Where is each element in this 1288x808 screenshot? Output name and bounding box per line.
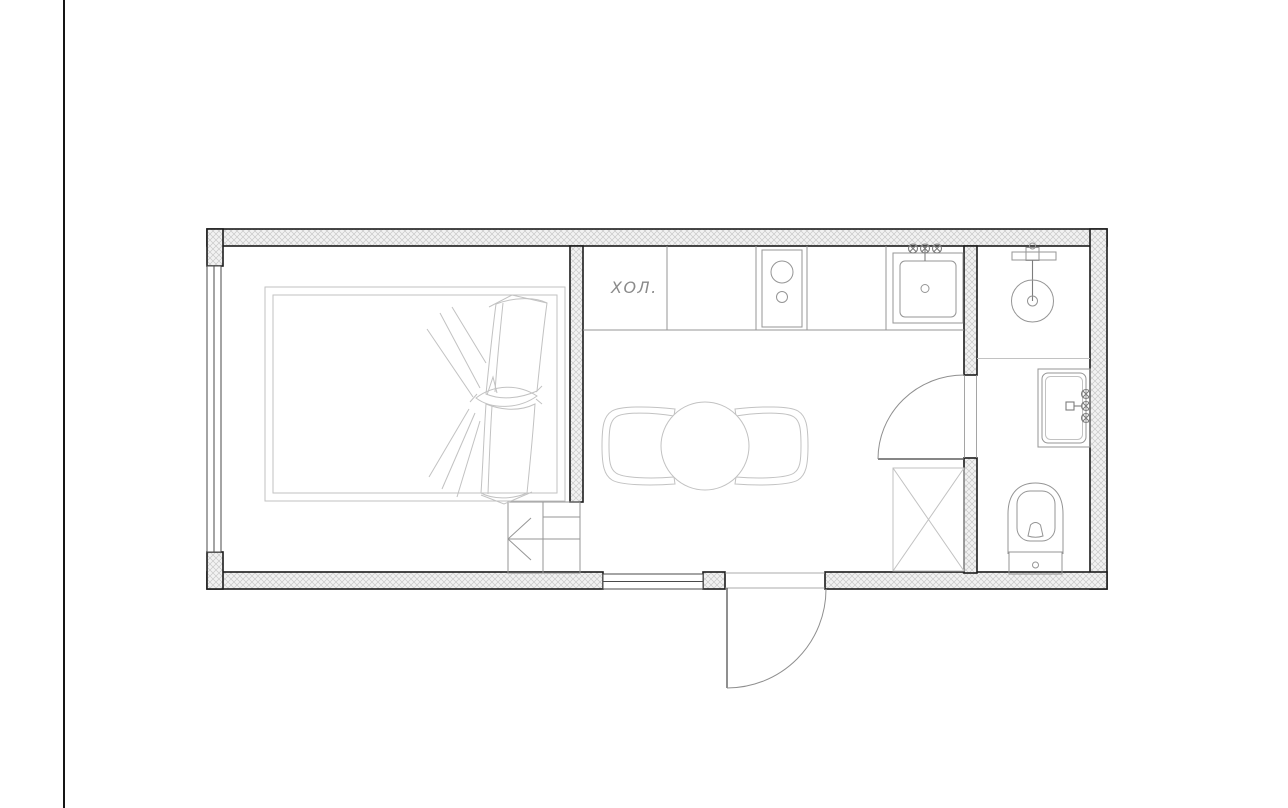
entry-door-swing-arc [727, 589, 826, 688]
wall-bottom-post [703, 572, 725, 589]
toilet [1008, 483, 1063, 574]
shower [977, 243, 1090, 359]
bedroom-wardrobe [508, 502, 580, 573]
dining-table [661, 402, 749, 490]
entry-door [725, 573, 826, 688]
floor-plan-drawing: ХОЛ. [0, 0, 1288, 808]
utility-shaft [893, 468, 964, 571]
wall-post-bottom-left [207, 552, 223, 589]
dining-set [602, 402, 808, 490]
washbasin-vanity [1038, 369, 1091, 447]
window-bottom [603, 574, 703, 589]
wall-right [1090, 229, 1107, 589]
windows [207, 266, 703, 589]
bathroom-door-swing-arc [878, 375, 964, 459]
wall-bathroom-lower [964, 458, 977, 573]
duvet-drawing [427, 295, 547, 504]
wall-bottom-left [207, 572, 603, 589]
wall-bottom-right [825, 572, 1107, 589]
fridge-label: ХОЛ. [610, 278, 658, 297]
wall-bedroom-partition [570, 246, 583, 502]
cooktop [762, 250, 802, 327]
wall-bathroom-upper [964, 246, 977, 375]
bed [265, 287, 565, 504]
bathroom-door [878, 375, 977, 459]
kitchen-sink [893, 244, 963, 323]
floor-plan-canvas: ХОЛ. [0, 0, 1288, 808]
window-left [207, 266, 221, 552]
wall-post-top-left [207, 229, 223, 266]
wall-top [207, 229, 1107, 246]
